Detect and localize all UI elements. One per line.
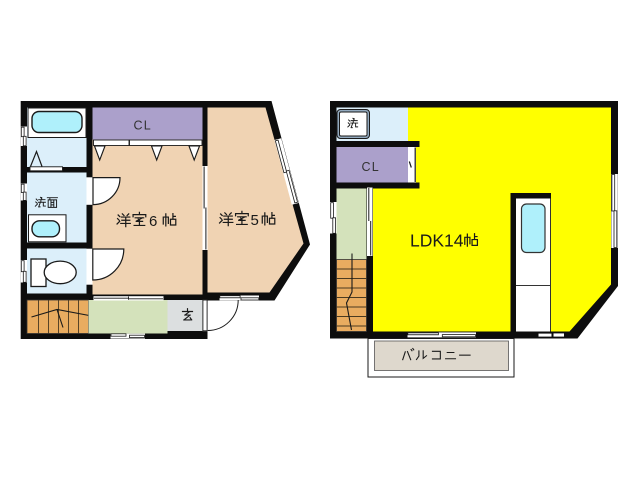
- svg-text:CL: CL: [362, 160, 380, 174]
- svg-text:LDK14: LDK14: [410, 231, 464, 251]
- svg-text:5: 5: [251, 212, 259, 229]
- svg-text:CL: CL: [134, 119, 152, 133]
- svg-text:6: 6: [149, 213, 157, 230]
